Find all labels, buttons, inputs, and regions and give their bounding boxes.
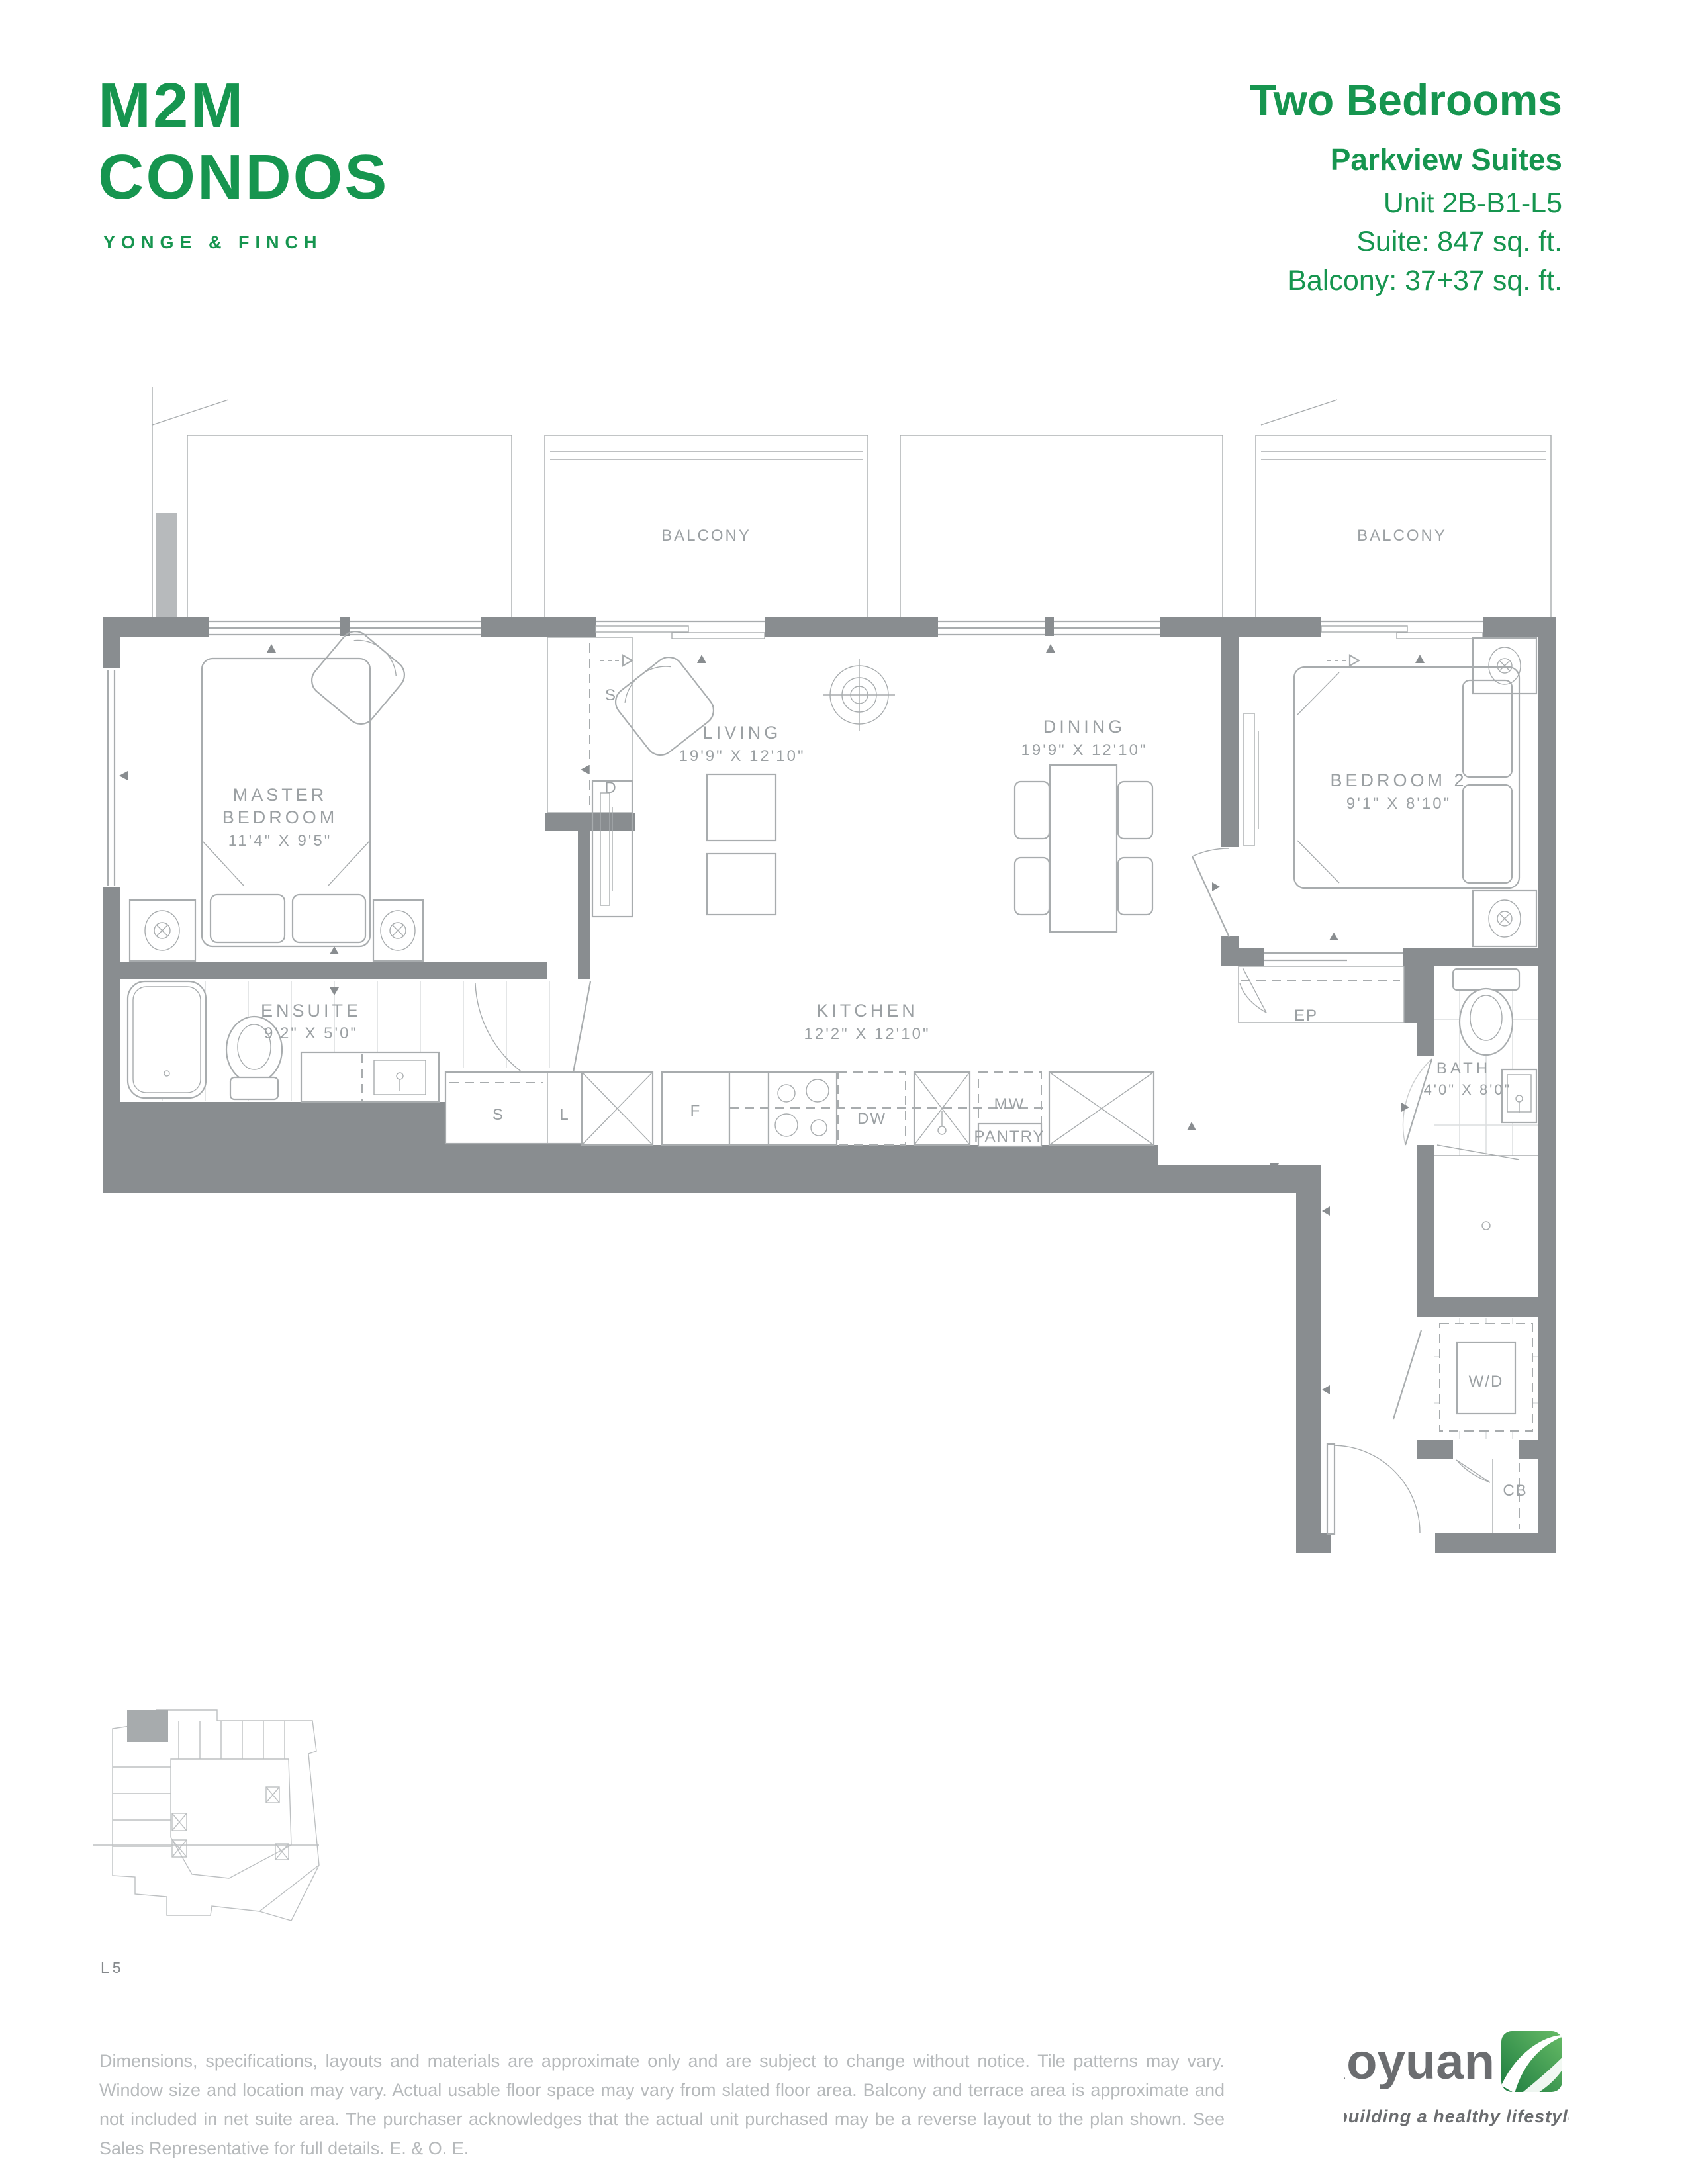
master-closet: S D [547,637,632,813]
logo-tagline: YONGE & FINCH [103,232,389,253]
floorplan-sheet: M2M CONDOS YONGE & FINCH Two Bedrooms Pa… [0,0,1688,2184]
pantry-label: PANTRY [974,1128,1045,1146]
washer-dryer: W/D [1434,1318,1538,1439]
kitchen-dims: 12'2" X 12'10" [804,1025,931,1043]
logo-line1: M2M [98,70,389,142]
dishwasher-label: DW [857,1110,886,1128]
lamp-icon [145,911,179,950]
bedroom-2: BEDROOM 2 9'1" X 8'10" [1244,638,1536,946]
linen-s-label: S [492,1106,504,1124]
dining-room: DINING 19'9" X 12'10" [1015,717,1152,932]
lamp-icon [1489,647,1521,684]
aoyuan-tagline: building a healthy lifestyle [1344,2107,1569,2126]
bathtub-icon [128,981,206,1098]
cb-label: CB [1503,1482,1527,1500]
balcony-2-label: BALCONY [1357,527,1447,545]
aoyuan-wordmark: Aoyuan [1344,2034,1495,2090]
dining-label: DINING [1043,717,1126,737]
living-label: LIVING [703,723,782,743]
vanity-sink-icon [301,1052,439,1102]
master-bedroom: MASTER BEDROOM 11'4" X 9'5" [130,625,423,961]
master-bedroom-label-2: BEDROOM [222,807,338,827]
fridge-label: F [690,1102,702,1120]
master-bedroom-dims: 11'4" X 9'5" [228,832,332,850]
brand-logo: M2M CONDOS YONGE & FINCH [98,70,389,253]
linen-l-label: L [559,1106,569,1124]
master-bedroom-label-1: MASTER [233,785,328,805]
wd-label: W/D [1469,1373,1504,1390]
bedroom2-dims: 9'1" X 8'10" [1346,795,1451,813]
lamp-icon [381,911,415,950]
plan-info: Two Bedrooms Parkview Suites Unit 2B-B1-… [1250,78,1562,300]
bath-dims: 4'0" X 8'0" [1424,1081,1512,1098]
lamp-icon [1489,900,1521,937]
ensuite-label: ENSUITE [261,1001,361,1021]
floorplan-drawing: BALCONY BALCONY [103,384,1556,1569]
plan-suite-area: Suite: 847 sq. ft. [1250,222,1562,261]
ep-label: EP [1294,1007,1318,1024]
kitchen: F DW MW PANTRY KITCHEN 12'2" X 12'10" [582,1001,1154,1146]
plan-balcony-area: Balcony: 37+37 sq. ft. [1250,261,1562,300]
bath-label: BATH [1436,1060,1491,1077]
living-room: LIVING 19'9" X 12'10" [592,651,895,917]
keyplan-unit-highlight [127,1710,168,1742]
bedroom2-label: BEDROOM 2 [1330,770,1467,790]
plan-type: Two Bedrooms [1250,78,1562,122]
bath: BATH 4'0" X 8'0" [1424,969,1538,1230]
kitchen-label: KITCHEN [816,1001,918,1021]
microwave-label: MW [994,1095,1025,1113]
living-dims: 19'9" X 12'10" [679,747,806,765]
coat-closet: CB [1456,1459,1528,1533]
slider-arrow-icon [1327,655,1359,666]
aoyuan-swoosh-icon [1501,2031,1569,2101]
ensuite-dims: 9'2" X 5'0" [264,1024,358,1042]
electrical-panel-closet: EP [1239,966,1404,1024]
linen-closet: S L [445,1072,583,1144]
toilet-icon [1453,969,1519,1055]
keyplan [93,1688,351,1933]
balcony-band: BALCONY BALCONY [152,387,1551,617]
ceiling-light-icon [823,659,895,731]
logo-line2: CONDOS [98,142,389,213]
aoyuan-logo: Aoyuan building a healthy lifestyle [1344,2022,1569,2138]
tv-icon [1244,713,1258,846]
plan-unit: Unit 2B-B1-L5 [1250,184,1562,222]
dining-dims: 19'9" X 12'10" [1021,741,1148,759]
tv-icon [592,781,632,917]
disclaimer-text: Dimensions, specifications, layouts and … [99,2046,1225,2163]
plan-collection: Parkview Suites [1250,142,1562,177]
shower-icon [1434,1145,1538,1230]
slider-arrow-icon [600,655,632,666]
balcony-1-label: BALCONY [661,527,751,545]
keyplan-level: L5 [101,1959,124,1977]
